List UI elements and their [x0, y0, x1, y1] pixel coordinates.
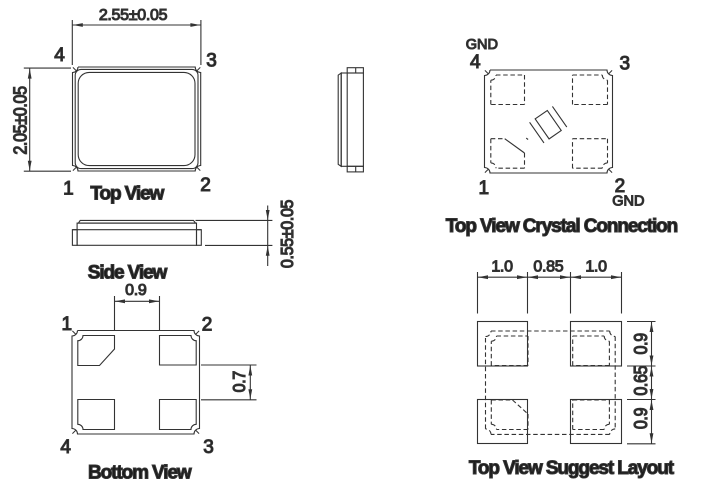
svg-text:Top View Crystal Connection: Top View Crystal Connection [446, 216, 678, 237]
svg-text:2.05±0.05: 2.05±0.05 [10, 86, 31, 154]
svg-text:1: 1 [62, 314, 73, 335]
svg-text:4: 4 [54, 45, 65, 66]
svg-text:0.9: 0.9 [630, 408, 651, 429]
svg-text:3: 3 [206, 51, 217, 72]
svg-text:GND: GND [466, 37, 498, 53]
svg-text:2: 2 [200, 175, 211, 196]
svg-text:1: 1 [63, 179, 74, 200]
svg-text:1: 1 [479, 178, 490, 199]
svg-text:0.9: 0.9 [630, 333, 651, 354]
svg-text:3: 3 [203, 437, 214, 458]
svg-text:0.65: 0.65 [630, 366, 651, 396]
svg-text:Top View Suggest Layout: Top View Suggest Layout [469, 458, 675, 479]
svg-text:Side View: Side View [88, 263, 168, 284]
svg-text:0.85: 0.85 [533, 258, 563, 275]
svg-text:4: 4 [60, 437, 71, 458]
svg-text:4: 4 [470, 52, 481, 73]
svg-text:Top View: Top View [90, 184, 164, 205]
svg-text:3: 3 [620, 54, 631, 75]
svg-text:2.55±0.05: 2.55±0.05 [99, 7, 168, 24]
svg-text:1.0: 1.0 [491, 258, 513, 275]
svg-text:0.55±0.05: 0.55±0.05 [277, 200, 297, 268]
svg-text:2: 2 [202, 314, 213, 335]
svg-text:0.9: 0.9 [125, 282, 147, 299]
svg-text:1.0: 1.0 [585, 258, 607, 275]
svg-text:0.7: 0.7 [229, 371, 249, 392]
svg-text:GND: GND [612, 194, 644, 210]
svg-text:Bottom View: Bottom View [88, 463, 192, 484]
